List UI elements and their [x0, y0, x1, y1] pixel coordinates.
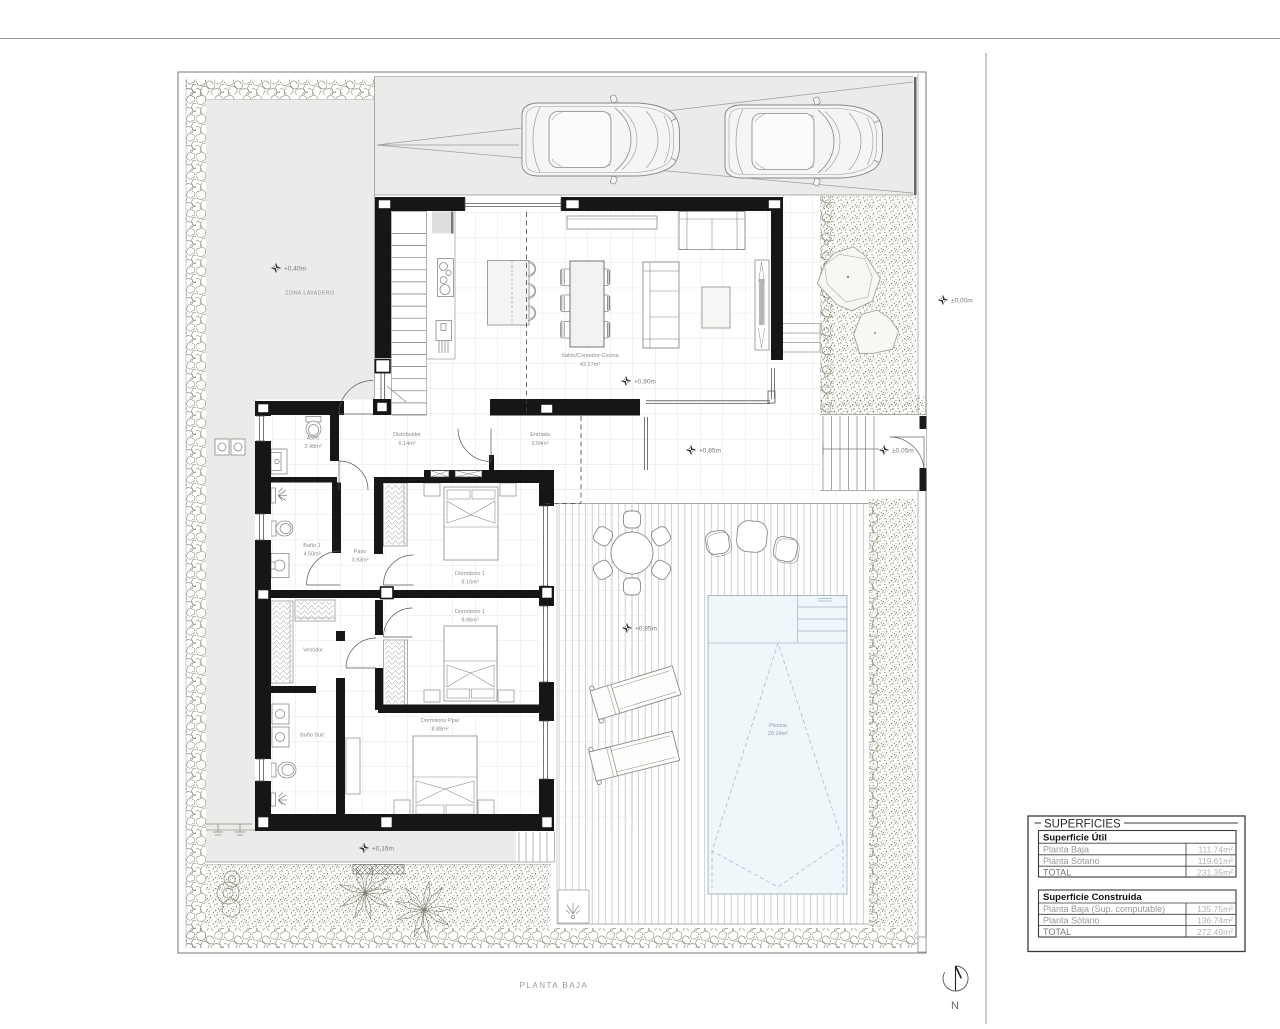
- svg-text:2.48m²: 2.48m²: [304, 444, 321, 450]
- svg-text:111.74m²: 111.74m²: [1198, 844, 1233, 854]
- svg-text:Superficie Construida: Superficie Construida: [1043, 892, 1142, 903]
- svg-text:+0,85m: +0,85m: [635, 626, 657, 633]
- svg-text:231.35m²: 231.35m²: [1197, 867, 1233, 877]
- svg-text:4.50m²: 4.50m²: [303, 552, 320, 558]
- svg-text:119.61m²: 119.61m²: [1198, 856, 1233, 866]
- svg-text:+0,85m: +0,85m: [699, 448, 721, 455]
- svg-text:Baño Suit: Baño Suit: [300, 733, 324, 739]
- svg-text:Paso: Paso: [354, 549, 367, 555]
- svg-text:42.27m²: 42.27m²: [580, 362, 600, 368]
- svg-text:Dormitorio Ppal: Dormitorio Ppal: [421, 718, 459, 724]
- svg-text:Dormitorio 1: Dormitorio 1: [455, 609, 485, 615]
- svg-text:±0,05m: ±0,05m: [892, 448, 914, 455]
- svg-text:8.96m²: 8.96m²: [461, 618, 478, 624]
- svg-text:Distribuidor: Distribuidor: [393, 432, 421, 438]
- svg-text:6.14m²: 6.14m²: [398, 441, 415, 447]
- svg-text:Planta Sótano: Planta Sótano: [1043, 915, 1100, 925]
- svg-text:ZONA LAVADERO: ZONA LAVADERO: [285, 291, 334, 297]
- svg-text:Planta Baja: Planta Baja: [1043, 844, 1089, 854]
- svg-text:+0,40m: +0,40m: [284, 266, 306, 273]
- svg-text:272.49m²: 272.49m²: [1197, 927, 1233, 937]
- svg-text:3.04m²: 3.04m²: [531, 441, 548, 447]
- svg-text:Superficie Útil: Superficie Útil: [1043, 832, 1107, 844]
- svg-text:Planta Baja (Sup. computable): Planta Baja (Sup. computable): [1043, 904, 1165, 914]
- svg-text:8.88m²: 8.88m²: [431, 727, 448, 733]
- svg-text:Aseo: Aseo: [307, 436, 320, 442]
- svg-text:20.24m²: 20.24m²: [768, 731, 788, 737]
- svg-text:TOTAL: TOTAL: [1043, 927, 1071, 937]
- svg-text:PLANTA BAJA: PLANTA BAJA: [520, 981, 589, 990]
- svg-text:N: N: [951, 1000, 959, 1012]
- svg-text:Vestidor: Vestidor: [303, 648, 323, 654]
- svg-text:135.75m²: 135.75m²: [1197, 904, 1233, 914]
- svg-text:SUPERFICIES: SUPERFICIES: [1044, 819, 1121, 831]
- svg-text:Piscina: Piscina: [769, 723, 788, 729]
- svg-text:8.16m²: 8.16m²: [461, 580, 478, 586]
- svg-text:136.74m²: 136.74m²: [1197, 915, 1233, 925]
- svg-text:3.93m²: 3.93m²: [351, 558, 368, 564]
- svg-text:+0,90m: +0,90m: [634, 379, 656, 386]
- svg-text:Dormitorio 1: Dormitorio 1: [455, 571, 485, 577]
- svg-text:+0,16m: +0,16m: [372, 846, 394, 853]
- svg-text:Entrada: Entrada: [530, 432, 550, 438]
- svg-text:Planta Sótano: Planta Sótano: [1043, 856, 1100, 866]
- svg-text:TOTAL: TOTAL: [1043, 867, 1071, 877]
- svg-text:Baño 1: Baño 1: [303, 543, 320, 549]
- svg-text:Salón/Comedor-Cocina: Salón/Comedor-Cocina: [561, 353, 619, 359]
- svg-text:±0,00m: ±0,00m: [951, 298, 973, 305]
